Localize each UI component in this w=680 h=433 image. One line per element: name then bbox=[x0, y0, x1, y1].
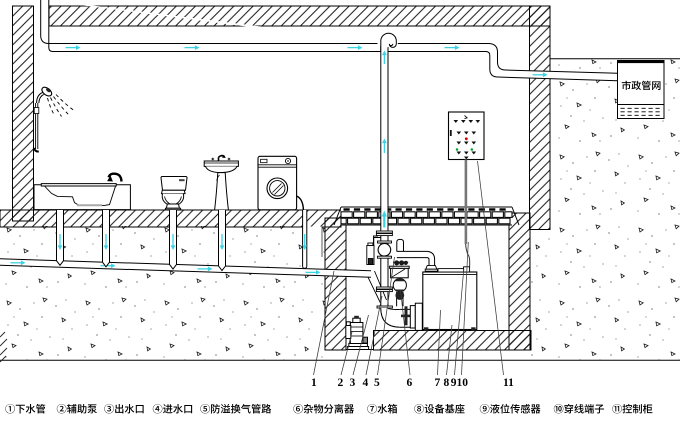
svg-text:5: 5 bbox=[374, 377, 380, 389]
svg-text:10: 10 bbox=[457, 377, 469, 389]
svg-text:1: 1 bbox=[311, 377, 317, 389]
svg-text:11: 11 bbox=[503, 377, 514, 389]
svg-text:6: 6 bbox=[407, 377, 413, 389]
svg-text:8: 8 bbox=[444, 377, 450, 389]
svg-text:3: 3 bbox=[350, 377, 356, 389]
svg-text:2: 2 bbox=[338, 377, 344, 389]
svg-text:7: 7 bbox=[435, 377, 441, 389]
svg-text:4: 4 bbox=[363, 377, 369, 389]
